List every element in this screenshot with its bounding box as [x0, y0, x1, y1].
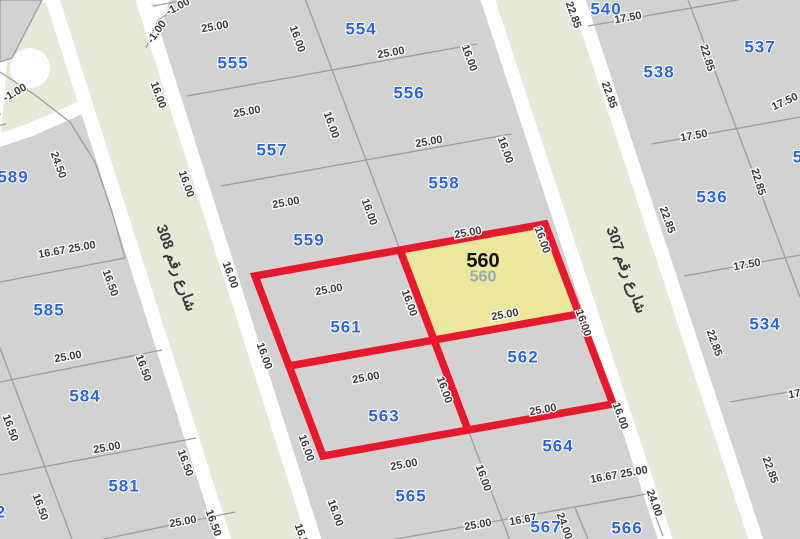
parcel-number-label[interactable]: 537 — [744, 38, 775, 57]
parcel-number-label[interactable]: 540 — [590, 0, 621, 19]
parcel-number-label[interactable]: 589 — [0, 168, 29, 187]
parcel-number-label[interactable]: 566 — [611, 519, 642, 538]
parcel-number-label[interactable]: 581 — [108, 477, 139, 496]
parcel-number-label[interactable]: 567 — [530, 518, 561, 537]
parcel-number-label[interactable]: 557 — [256, 141, 287, 160]
parcel-number-label[interactable]: 556 — [393, 84, 424, 103]
parcel-number-label[interactable]: 555 — [217, 54, 248, 73]
parcel-number-label[interactable]: 538 — [643, 63, 674, 82]
parcel-number-label[interactable]: 563 — [368, 407, 399, 426]
map-canvas[interactable]: -1.00-1.0025.0016.0016.0025.0016.0025.00… — [0, 0, 800, 539]
parcel-number-label[interactable]: 534 — [749, 315, 780, 334]
parcel-number-label[interactable]: 558 — [428, 174, 459, 193]
selected-plot-number-label[interactable]: 560 — [466, 250, 499, 272]
parcel-number-label[interactable]: 561 — [330, 318, 361, 337]
parcel-number-label[interactable]: 536 — [696, 188, 727, 207]
parcel-number-label[interactable]: 559 — [293, 231, 324, 250]
parcel-number-label[interactable]: 585 — [33, 301, 64, 320]
parcel-number-label[interactable]: 565 — [395, 487, 426, 506]
parcel-number-label[interactable]: 564 — [542, 437, 573, 456]
parcel-number-label[interactable]: 554 — [345, 20, 376, 39]
parcel-number-label[interactable]: 5 — [793, 148, 800, 167]
parcel-number-label[interactable]: 2 — [0, 503, 6, 522]
cadastral-map[interactable]: -1.00-1.0025.0016.0016.0025.0016.0025.00… — [0, 0, 800, 539]
parcel-number-label[interactable]: 584 — [69, 387, 100, 406]
parcel-number-label[interactable]: 562 — [507, 348, 538, 367]
